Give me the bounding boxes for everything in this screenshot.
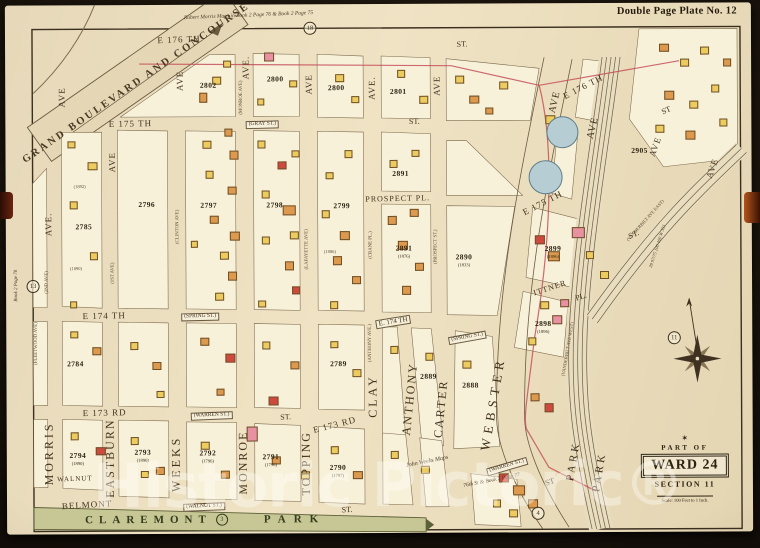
building-footprint [331,446,339,454]
building-footprint [711,85,719,93]
park-name-b: PARK [264,513,326,525]
building-footprint [664,91,674,100]
building-footprint [415,263,424,271]
gas-tank [546,116,578,148]
badge-star-icon: ✶ [629,434,741,442]
building-footprint [659,44,669,52]
building-footprint [202,141,211,149]
block-number: 2891(1876) [396,239,413,260]
map-label: (1892) [74,185,86,190]
building-footprint [723,58,731,66]
map-label: ST. [456,40,467,49]
building-footprint [90,252,98,260]
building-footprint [689,101,698,109]
building-footprint [419,96,428,104]
block-number: 2800 [328,78,345,94]
building-footprint [199,93,207,103]
building-footprint [228,187,237,195]
ward-badge: ✶ PART OF WARD 24 SECTION 11 Scale: 100 … [629,434,741,506]
block-number: 2905 [631,141,648,157]
building-footprint [485,107,493,114]
building-footprint [206,171,214,179]
building-footprint [586,251,594,259]
building-footprint [421,466,430,474]
building-footprint [152,362,161,370]
building-footprint [340,231,350,240]
building-footprint [397,70,405,78]
map-label: ITTNER [532,279,567,297]
building-footprint [292,286,300,294]
block-number: 2899(1896) [545,239,562,260]
map-label: (VANDERBILT AVE WEST) [561,322,575,377]
badge-part-of: PART OF [629,443,741,451]
map-label: (1890) [70,267,82,272]
building-footprint [462,361,471,369]
building-footprint [130,342,138,350]
building-footprint [70,331,78,338]
block-number: 2802 [200,76,217,92]
map-label: WEEKS [170,436,182,492]
building-footprint [278,161,287,169]
block-number: 2889 [420,367,437,383]
building-footprint [402,286,411,295]
map-label: EASTBURN [104,418,116,497]
map-label: E 173 RD [312,415,357,435]
building-footprint [157,391,165,398]
map-label: ST. [409,118,420,126]
map-label: AVE [548,90,563,114]
right-clasp [744,192,760,223]
circled-number: 4 [532,507,545,520]
building-footprint [535,235,545,244]
building-footprint [220,252,229,260]
plate-title: Double Page Plate No. 12 [539,5,737,17]
map-label: WEBSTER [478,355,507,451]
building-footprint [552,315,562,324]
building-footprint [330,341,338,348]
building-footprint [600,271,609,279]
map-label: AVE [648,136,663,158]
building-footprint [291,150,299,157]
map-label: E 175 TH [109,119,153,129]
map-label: ANTHONY [400,362,419,436]
building-footprint [545,403,554,412]
atlas-photo: { "plate": { "title": "Double Page Plate… [0,0,760,548]
block-number: 2797 [200,196,217,212]
building-footprint [141,471,149,478]
building-footprint [655,125,664,133]
map-label: ST [660,105,672,116]
building-footprint [513,485,525,495]
block-number: 2898(1896) [535,314,552,335]
map-label: (GRAY ST.) [246,120,279,128]
map-label: AVE [58,87,67,107]
building-footprint [493,499,501,507]
map-label: CARTER [432,379,450,439]
building-footprint [391,451,399,459]
building-footprint [352,369,361,377]
map-label: AVE. [242,56,251,80]
building-footprint [67,141,75,148]
map-label: (PROSPECT ST.) [434,229,439,264]
building-footprint [70,201,78,209]
map-label: AVE [586,116,601,140]
building-footprint [528,337,536,345]
map-label: AVE [433,76,442,96]
building-footprint [229,151,238,160]
map-canvas: E 176 THST.E 176 THSTE 175 TH(GRAY ST.)S… [5,2,753,534]
map-label: BELMONT [62,499,113,511]
map-label: E 176 TH [562,73,605,101]
map-label: (1ST AVE) [112,263,117,284]
building-footprint [326,172,334,179]
building-footprint [228,272,237,281]
block-number: 2784 [67,354,84,370]
badge-section: SECTION 11 [629,479,741,488]
building-footprint [262,236,270,244]
map-sheet: E 176 THST.E 176 THSTE 175 TH(GRAY ST.)S… [5,2,753,534]
building-footprint [344,150,352,158]
building-footprint [283,205,296,215]
building-footprint [410,209,419,217]
map-label: AVE [305,74,314,94]
building-footprint [330,301,338,309]
map-label: MONROE [237,431,249,495]
building-footprint [258,300,266,307]
building-footprint [156,467,165,475]
building-footprint [225,354,235,363]
map-label: (1886) [324,250,336,255]
block-number: 2800 [267,69,284,85]
building-footprint [540,301,549,309]
circled-number: 11 [668,331,681,344]
block-number: 2794(1890) [69,446,86,467]
map-label: (ANTHONY AVE.) [369,324,374,362]
map-label: PARK [565,440,583,482]
map-label: AVE. [44,213,53,237]
building-footprint [351,96,359,103]
map-label: (FLEETWOOD AVE) [35,322,40,365]
building-footprint [71,432,79,440]
building-footprint [322,210,330,218]
block-number: 2792(1796) [199,443,216,464]
building-footprint [680,59,689,67]
building-footprint [469,96,479,104]
building-footprint [531,393,540,401]
map-label: ST. [342,506,353,514]
building-footprint [191,241,198,248]
building-footprint [353,471,363,479]
map-label: (WALNUT ST.) [183,502,225,511]
block-number: 2785 [75,217,92,233]
building-footprint [333,256,342,265]
map-label: AVE. [368,76,377,100]
building-footprint [210,216,219,224]
map-label: TOPPING [300,431,312,496]
badge-scale: Scale: 100 Feet to 1 Inch. [657,496,714,503]
block-number: 2888 [462,376,479,392]
building-footprint [700,47,709,55]
building-footprint [509,509,518,517]
map-label: PL. [574,292,587,303]
map-label: (CRANE PL.) [369,231,374,258]
building-footprint [262,341,270,349]
map-label: PARK [591,451,609,493]
park-name-a: CLAREMONT [85,514,212,527]
block-number: 2799 [333,196,350,212]
map-label: E 173 RD [83,408,127,418]
block-number: 2891 [392,164,409,180]
map-label: AVE [705,157,720,179]
block-number: 2796 [138,195,155,211]
building-footprint [425,353,433,361]
block-number: 2790(1797) [330,458,347,479]
building-footprint [230,232,240,241]
map-label: ST [544,477,555,488]
map-label: WALNUT [57,475,93,483]
map-label: E. 174 TH [375,315,411,330]
building-footprint [455,76,464,84]
building-footprint [285,261,294,270]
circled-number: 13 [27,280,40,293]
building-footprint [290,361,299,369]
building-footprint [352,276,361,284]
building-footprint [289,80,297,87]
map-label: CLAY [366,374,378,418]
building-footprint [257,140,265,148]
building-footprint [560,299,569,307]
building-footprint [388,216,397,225]
building-footprint [499,81,508,89]
claremont-park-label: CLAREMONT 3 PARK [85,513,326,526]
building-footprint [224,129,232,137]
building-footprint [264,52,274,61]
park-circled-number: 3 [216,514,228,526]
map-label: (LAFAYETTE AVE) [305,229,310,269]
block-number: 2798 [266,195,283,211]
circled-number: 18 [303,22,316,35]
map-label: (SPRING ST.) [181,313,219,321]
building-footprint [92,347,101,355]
building-footprint [217,389,225,396]
map-label: (SPRING ST.) [448,331,487,345]
building-footprint [221,471,230,479]
building-footprint [411,150,419,157]
building-footprint [70,301,77,308]
map-label: AVE [108,152,117,172]
block-number: 2791(1796) [262,447,279,468]
left-clasp [0,192,13,219]
building-footprint [572,227,585,238]
building-footprint [269,396,279,405]
map-label: PROSPECT PL. [365,194,430,203]
building-footprint [200,338,209,346]
map-label: (WARREN ST.) [191,411,233,420]
left-margin-note: Book 2 Page 78 [14,270,19,302]
building-footprint [223,61,231,68]
block-number: 2801 [390,82,407,98]
building-footprint [88,162,98,170]
map-label: (MONROE AVE) [240,81,245,115]
building-footprint [290,231,299,239]
block-number: 2789 [330,354,347,370]
map-label: ST. [280,413,291,422]
map-label: (CLINTON AVE) [176,210,181,244]
building-footprint [719,118,727,126]
map-label: MORRIS [43,421,55,485]
building-footprint [390,346,398,354]
map-label: AVE [176,71,185,91]
block-number: 2793(1890) [134,443,151,464]
map-label: (2ND AVE) [46,271,51,294]
building-footprint [257,98,264,105]
block-number: 2890(1833) [456,247,473,268]
building-footprint [215,293,224,301]
building-footprint [685,131,695,140]
map-label: E 174 TH [82,311,126,321]
badge-ward: WARD 24 [641,453,728,477]
